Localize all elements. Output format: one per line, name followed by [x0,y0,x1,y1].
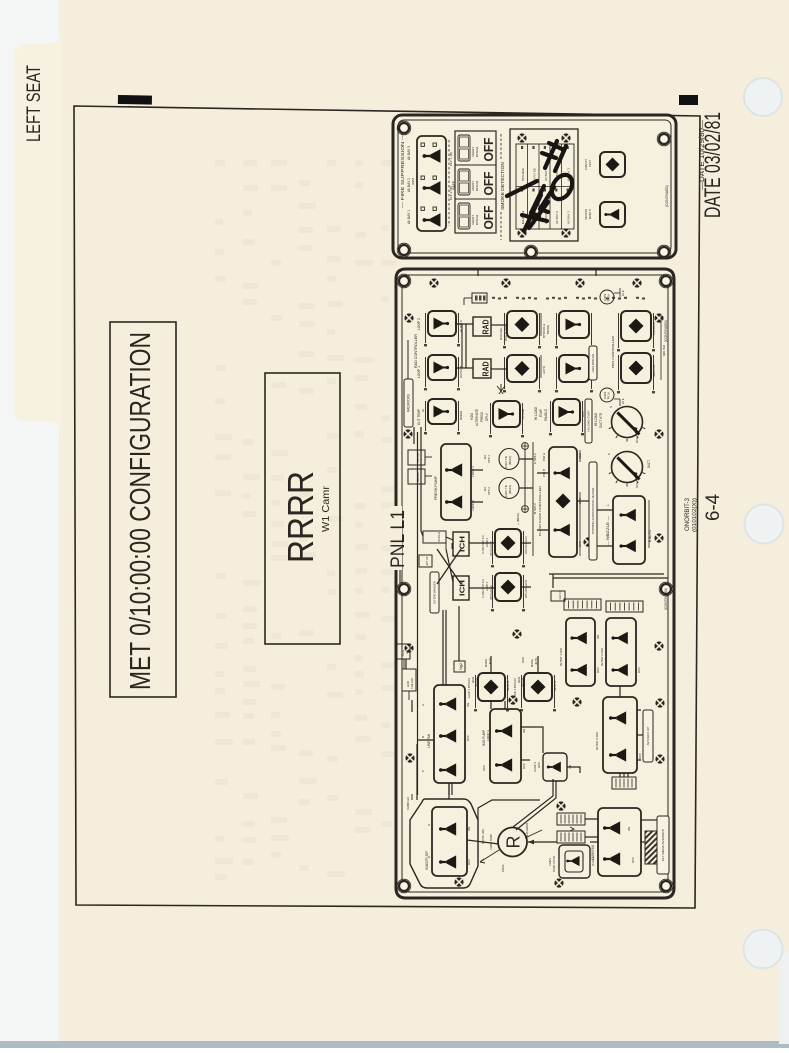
svg-text:AV BAY 1 FAN: AV BAY 1 FAN [559,648,563,666]
svg-text:O F: O F [621,290,625,296]
svg-text:DPLY: DPLY [485,412,489,421]
svg-text:(CONTINUED): (CONTINUED) [665,185,669,207]
svg-text:RAN SEL: RAN SEL [499,327,503,340]
svg-text:OFF: OFF [482,205,496,229]
svg-text:OFF: OFF [466,735,470,741]
svg-text:OFF: OFF [635,437,639,443]
svg-text:B SPLY: B SPLY [533,503,537,514]
svg-text:GPC: GPC [482,765,486,771]
svg-text:SYS 2: SYS 2 [487,487,491,495]
svg-text:— FIRE SUPPRESSION —: — FIRE SUPPRESSION — [400,133,405,208]
svg-text:(010102(X)): (010102(X)) [692,498,698,532]
svg-text:H2O: H2O [603,294,607,301]
svg-text:FLT 1 (B): FLT 1 (B) [449,152,453,166]
svg-text:CABIN TEMP: CABIN TEMP [489,834,493,850]
svg-text:HI LOAD EVAP: HI LOAD EVAP [587,410,591,431]
svg-text:H2O: H2O [470,412,474,420]
svg-text:DISCH: DISCH [475,215,479,225]
svg-text:OFF: OFF [467,859,471,865]
svg-text:A SPLY: A SPLY [533,453,537,464]
svg-text:AV BAY 3 FAN: AV BAY 3 FAN [595,732,599,750]
svg-text:TOPPING EVAPORATOR HEATER: TOPPING EVAPORATOR HEATER [591,487,595,535]
svg-text:ARM: ARM [411,177,415,185]
svg-text:ICH: ICH [458,580,467,596]
svg-text:ON: ON [522,729,526,733]
svg-text:RAD: RAD [521,657,525,663]
svg-text:RRRR: RRRR [280,471,321,563]
svg-text:AV RACK CP: AV RACK CP [646,727,650,746]
svg-text:S: S [609,406,613,408]
svg-text:LOOP 2: LOOP 2 [417,318,421,330]
svg-text:TK N: TK N [607,392,611,399]
svg-text:PRI A: PRI A [542,453,546,461]
svg-text:L: L [606,504,610,506]
svg-text:+ (BRA): + (BRA) [516,513,520,525]
svg-text:(CONTINUED): (CONTINUED) [664,320,668,342]
svg-text:AV BAY 3: AV BAY 3 [567,211,571,224]
svg-text:RAD: RAD [482,361,491,376]
svg-text:COOL: COOL [501,864,505,872]
svg-text:OFF: OFF [631,857,635,863]
svg-text:AV BAY 2 FAN: AV BAY 2 FAN [600,648,604,666]
svg-text:PRI/GPC: PRI/GPC [652,321,656,335]
svg-text:B: B [427,856,431,858]
svg-text:(BLR) WARM: (BLR) WARM [525,822,529,838]
svg-text:DUCT: DUCT [647,460,651,468]
svg-text:OFF: OFF [635,482,639,488]
svg-text:CABIN FAN: CABIN FAN [591,844,595,860]
svg-text:HRS BOILER: HRS BOILER [591,353,595,373]
svg-text:HI: HI [421,409,425,412]
svg-text:A: A [421,704,425,706]
svg-text:MODE: MODE [546,325,550,334]
svg-text:EVAP: EVAP [539,409,543,417]
svg-text:FLASH EVAP CONTROLLER: FLASH EVAP CONTROLLER [538,485,542,536]
svg-text:FLT DECK AVIONICS: FLT DECK AVIONICS [661,829,665,861]
svg-text:OFF: OFF [522,763,526,769]
svg-text:DISCH: DISCH [475,181,479,191]
svg-text:PAYLOAD: PAYLOAD [521,168,525,181]
svg-text:HI LOAD: HI LOAD [594,412,598,426]
svg-text:OFF: OFF [482,137,496,161]
svg-text:ALTERNATE: ALTERNATE [475,409,479,426]
svg-text:OFF: OFF [581,411,585,417]
svg-text:HX: HX [405,650,409,654]
svg-text:AV BAY 3: AV BAY 3 [407,146,411,160]
svg-text:DISCH: DISCH [475,147,479,157]
svg-text:(BLR): (BLR) [508,456,512,465]
svg-text:AFT CP: AFT CP [425,556,429,565]
svg-text:LINE FAN: LINE FAN [427,733,431,748]
svg-text:RAD CONTROLLER: RAD CONTROLLER [414,333,418,368]
svg-text:TEMP CNTLR: TEMP CNTLR [552,856,556,872]
svg-text:PAYLOAD H2: PAYLOAD H2 [437,532,441,542]
svg-text:ON: ON [467,827,471,831]
svg-text:OFF: OFF [482,171,496,195]
svg-text:H2O: H2O [603,392,607,399]
svg-text:PAYLOAD HX A: PAYLOAD HX A [524,536,528,554]
svg-text:LOOP 1: LOOP 1 [417,366,421,378]
svg-text:(CONTINUED): (CONTINUED) [664,588,668,610]
svg-text:OFF: OFF [638,753,642,759]
svg-text:OFF: OFF [596,667,600,673]
svg-text:R: R [504,836,524,849]
svg-text:SMOKE DETECTION: SMOKE DETECTION [500,162,505,210]
svg-text:INTERCHANGER: INTERCHANGER [433,580,437,603]
svg-text:PAYLOAD HX B: PAYLOAD HX B [524,580,528,598]
svg-text:CHILLER: CHILLER [410,678,414,689]
svg-text:DUCT HTR: DUCT HTR [599,412,603,428]
svg-text:OFF: OFF [637,667,641,673]
svg-text:LEFT SEAT: LEFT SEAT [24,65,45,142]
svg-text:GPC: GPC [537,761,541,768]
svg-text:SEC/ON: SEC/ON [652,365,656,377]
svg-text:ON: ON [466,703,470,707]
svg-text:FRESH PUMP: FRESH PUMP [434,475,438,500]
svg-text:A: A [427,824,431,826]
svg-text:DECK Δ: DECK Δ [553,681,557,691]
svg-text:6-4: 6-4 [703,494,724,521]
svg-text:HUMIDITY SEP: HUMIDITY SEP [425,851,429,870]
svg-text:TK N: TK N [607,294,611,301]
svg-text:NORM: NORM [459,411,463,420]
svg-text:AUTO: AUTO [542,365,546,374]
svg-text:PRESS: PRESS [480,412,484,422]
svg-text:TEST: TEST [588,160,592,167]
svg-text:HRS CONTROLLER: HRS CONTROLLER [611,335,615,368]
svg-text:ONORBIT-3: ONORBIT-3 [684,497,691,531]
svg-text:AV BAY 1: AV BAY 1 [407,210,411,224]
svg-text:RESET ▼: RESET ▼ [588,209,592,219]
svg-text:ICH: ICH [458,536,467,552]
svg-text:DECK Δ: DECK Δ [506,681,510,691]
svg-text:MET 0/10:00:00 CONFIGURATION: MET 0/10:00:00 CONFIGURATION [125,332,157,690]
svg-text:RADIATORS: RADIATORS [407,394,411,412]
svg-text:ENABLE: ENABLE [544,409,548,421]
svg-text:AV BAY 2: AV BAY 2 [555,211,559,224]
svg-text:W FLT DE: W FLT DE [532,168,536,181]
svg-text:O F: O F [621,398,625,404]
svg-text:ON: ON [596,635,600,639]
svg-text:SYS 1: SYS 1 [487,455,491,463]
svg-text:HI LOAD: HI LOAD [534,406,538,420]
svg-text:DATE 03/02/81: DATE 03/02/81 [700,112,725,218]
svg-text:W1 Camr: W1 Camr [320,485,332,532]
svg-text:B: B [421,736,425,738]
svg-text:RAD: RAD [482,319,491,334]
svg-text:MO ISR: MO ISR [662,344,666,356]
svg-text:PNL L1: PNL L1 [387,510,409,568]
svg-text:GN2 CP: GN2 CP [558,590,562,599]
svg-text:CLOSE: CLOSE [521,409,525,419]
svg-text:Ng2: Ng2 [459,663,463,670]
svg-text:CABIN HX: CABIN HX [406,797,410,810]
svg-text:— NOZZLE —: — NOZZLE — [606,515,610,546]
svg-text:(BLR): (BLR) [508,485,512,494]
svg-text:ON: ON [627,827,631,831]
